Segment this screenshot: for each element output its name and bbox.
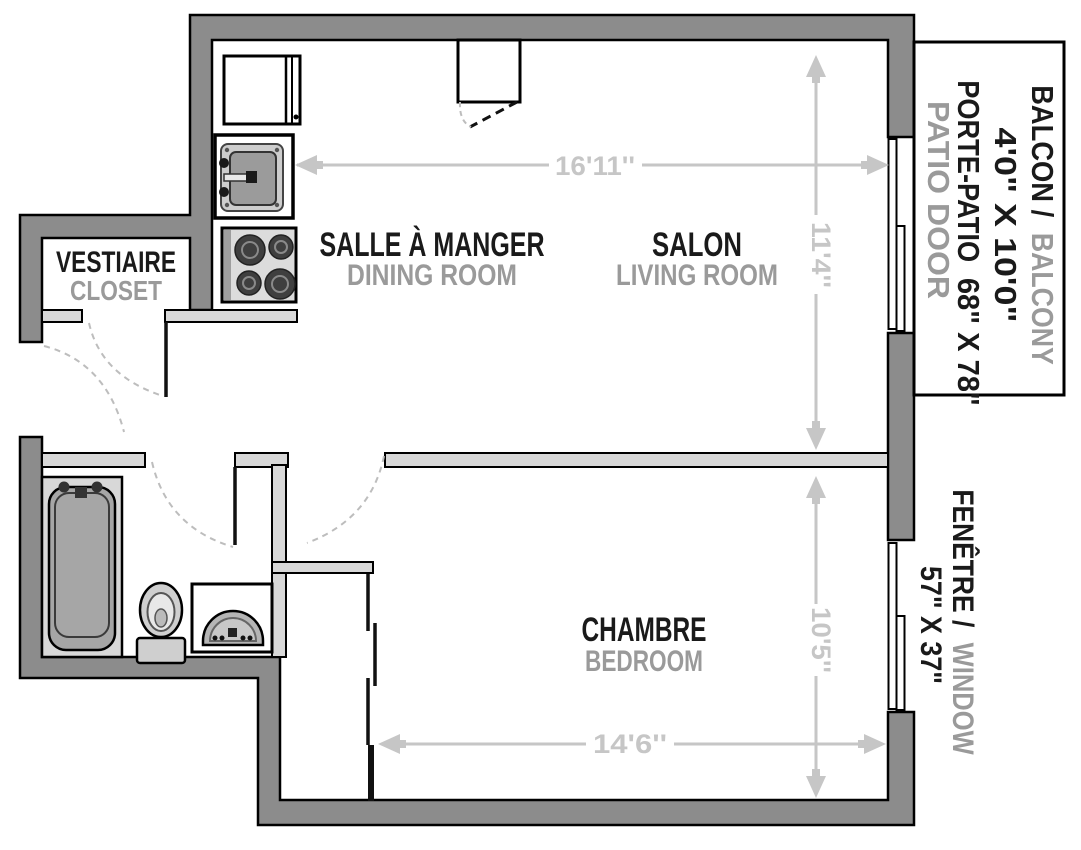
floor-plan: BALCON / BALCONY 4'0" X 10'0" PORTE-PATI… (0, 0, 1081, 850)
patio-door-label-en: PATIO DOOR (921, 101, 956, 299)
wall-right-middle (888, 333, 914, 540)
toilet-tank (137, 638, 185, 663)
wall-vestiaire-stub (42, 310, 82, 322)
balcony-name-label: BALCON / BALCONY (1025, 85, 1060, 365)
patio-door-panel-slider (897, 226, 905, 331)
sink-faucet-spout (224, 174, 249, 181)
window-name-fr: FENÊTRE / (946, 489, 980, 628)
wall-bathroom-top-left (42, 453, 145, 467)
dim-living-depth-label: 11'4'' (806, 222, 836, 288)
sink-screw (225, 203, 229, 207)
balcony: BALCON / BALCONY 4'0" X 10'0" PORTE-PATI… (914, 42, 1064, 406)
dim-living-width-label: 16'11'' (555, 151, 635, 181)
wall-kitchen-bottom (165, 310, 297, 322)
sink-screw (275, 148, 279, 152)
kitchen-fixtures (215, 56, 300, 302)
burner (265, 269, 295, 299)
vanity-handle (213, 636, 218, 641)
kitchen-sink-icon (215, 135, 293, 218)
bedroom-label-fr: CHAMBRE (582, 611, 707, 649)
vanity-faucet (228, 628, 237, 637)
dining-label-en: DINING ROOM (347, 259, 517, 292)
sink-screw (225, 148, 229, 152)
vanity-handle (220, 636, 225, 641)
stove-edge (224, 230, 231, 300)
bathtub-icon (42, 477, 122, 657)
toilet-drain (155, 609, 167, 627)
wall-bedroom-divider (385, 453, 888, 467)
balcony-name-fr: BALCON / (1025, 85, 1060, 217)
vestiaire-label-en: CLOSET (70, 275, 162, 306)
burner (237, 271, 261, 295)
entry-door-icon (458, 40, 520, 102)
dim-bedroom-width-label: 14'6'' (593, 729, 667, 759)
refrigerator-body (224, 56, 300, 124)
bathtub-outer (49, 487, 115, 650)
toilet-icon (137, 583, 185, 663)
balcony-size-label: 4'0" X 10'0" (988, 128, 1023, 323)
sink-handle-cold (219, 187, 229, 197)
bathtub-handle-cold (92, 482, 103, 493)
floor-plan-canvas: BALCON / BALCONY 4'0" X 10'0" PORTE-PATI… (0, 0, 1081, 850)
refrigerator-icon (224, 56, 300, 124)
wall-closet-top (272, 562, 373, 573)
living-label-en: LIVING ROOM (616, 259, 778, 292)
window-name-label: FENÊTRE / WINDOW (946, 489, 980, 755)
window-size-label: 57" X 37" (914, 566, 947, 684)
bedroom-label-en: BEDROOM (585, 645, 703, 678)
burner (235, 235, 265, 265)
bathtub-spout (75, 487, 87, 498)
sink-screw (275, 203, 279, 207)
sink-faucet-head (246, 171, 257, 183)
window-sash (897, 616, 905, 710)
dim-bedroom-depth-label: 10'5'' (806, 607, 836, 673)
burner (269, 235, 293, 259)
sink-handle-hot (219, 158, 229, 168)
window-frame (889, 543, 897, 709)
balcony-name-en: BALCONY (1025, 233, 1060, 365)
stove-icon (222, 228, 296, 302)
patio-door-panel-fixed (889, 139, 897, 329)
bathroom-sink-icon (192, 584, 272, 652)
vanity-handle (248, 636, 253, 641)
refrigerator-handle (294, 115, 299, 120)
vanity-handle (241, 636, 246, 641)
bathtub-handle-hot (59, 482, 70, 493)
window-name-en: WINDOW (946, 643, 979, 756)
